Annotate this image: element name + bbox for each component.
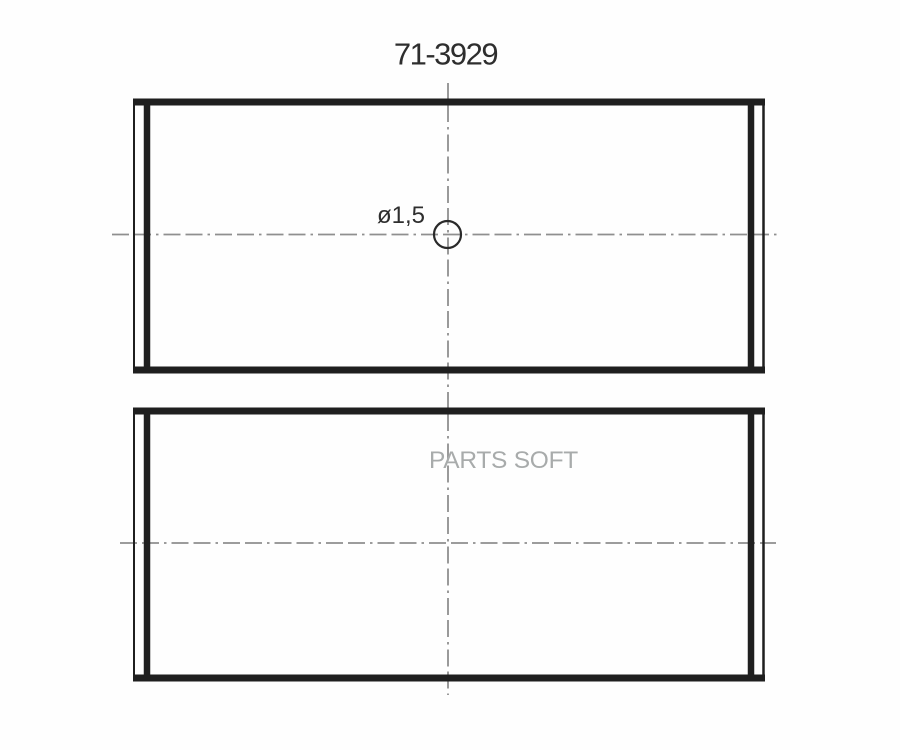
svg-text:PARTS SOFT: PARTS SOFT	[429, 447, 578, 474]
svg-text:ø1,5: ø1,5	[377, 202, 425, 229]
svg-text:71-3929: 71-3929	[394, 37, 498, 72]
